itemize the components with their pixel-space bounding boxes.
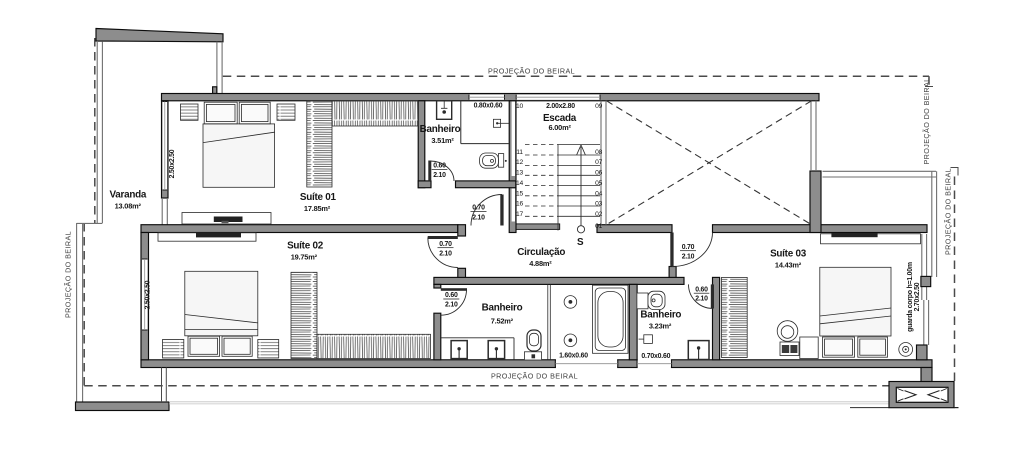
- svg-text:guarda corpo h=1.00m: guarda corpo h=1.00m: [907, 262, 914, 332]
- svg-text:Varanda: Varanda: [109, 189, 146, 200]
- svg-text:Suíte 03: Suíte 03: [770, 249, 807, 260]
- svg-text:2.10: 2.10: [472, 214, 485, 221]
- svg-text:Banheiro: Banheiro: [420, 124, 461, 135]
- svg-text:4.88m²: 4.88m²: [529, 259, 552, 268]
- svg-text:PROJEÇÃO DO BEIRAL: PROJEÇÃO DO BEIRAL: [488, 66, 575, 75]
- svg-text:0.70x0.60: 0.70x0.60: [641, 353, 670, 360]
- svg-text:07: 07: [595, 159, 603, 166]
- svg-text:Circulação: Circulação: [517, 247, 565, 258]
- svg-text:PROJEÇÃO DO BEIRAL: PROJEÇÃO DO BEIRAL: [922, 77, 931, 164]
- svg-text:09: 09: [595, 103, 603, 110]
- svg-text:16: 16: [516, 201, 524, 208]
- svg-text:03: 03: [595, 201, 603, 208]
- svg-text:2.10: 2.10: [445, 301, 458, 308]
- svg-text:05: 05: [595, 180, 603, 187]
- svg-text:PROJEÇÃO DO BEIRAL: PROJEÇÃO DO BEIRAL: [64, 231, 73, 318]
- svg-text:01: 01: [595, 223, 603, 230]
- svg-text:12: 12: [516, 159, 524, 166]
- svg-text:19.75m²: 19.75m²: [291, 252, 318, 261]
- svg-text:2.50x2.50: 2.50x2.50: [145, 280, 152, 309]
- svg-text:06: 06: [595, 170, 603, 177]
- svg-text:3.51m²: 3.51m²: [431, 136, 454, 145]
- svg-text:0.60: 0.60: [433, 162, 446, 169]
- svg-text:0.70: 0.70: [472, 205, 485, 212]
- svg-text:PROJEÇÃO DO BEIRAL: PROJEÇÃO DO BEIRAL: [944, 168, 953, 255]
- svg-text:13: 13: [516, 170, 524, 177]
- svg-text:7.52m²: 7.52m²: [491, 317, 514, 326]
- svg-text:2.10: 2.10: [682, 253, 695, 260]
- svg-text:3.23m²: 3.23m²: [649, 322, 672, 331]
- svg-text:13.08m²: 13.08m²: [115, 202, 142, 211]
- svg-text:0.70: 0.70: [439, 241, 452, 248]
- svg-text:02: 02: [595, 211, 603, 218]
- svg-text:17: 17: [516, 211, 524, 218]
- svg-text:Suíte 02: Suíte 02: [287, 240, 324, 251]
- svg-text:17.85m²: 17.85m²: [304, 204, 331, 213]
- svg-text:Suíte 01: Suíte 01: [300, 192, 337, 203]
- svg-text:2.10: 2.10: [695, 295, 708, 302]
- svg-text:0.60: 0.60: [445, 292, 458, 299]
- svg-text:04: 04: [595, 190, 603, 197]
- svg-text:6.00m²: 6.00m²: [548, 123, 571, 132]
- svg-text:15: 15: [516, 190, 524, 197]
- svg-text:2.10: 2.10: [433, 172, 446, 179]
- svg-text:2.50x2.50: 2.50x2.50: [169, 149, 176, 178]
- svg-text:0.60: 0.60: [695, 287, 708, 294]
- svg-text:11: 11: [516, 149, 523, 156]
- svg-text:S: S: [577, 237, 584, 248]
- svg-text:14.43m²: 14.43m²: [775, 261, 802, 270]
- svg-text:2.00x2.80: 2.00x2.80: [546, 103, 575, 110]
- svg-text:14: 14: [516, 180, 524, 187]
- svg-text:PROJEÇÃO DO BEIRAL: PROJEÇÃO DO BEIRAL: [491, 371, 578, 380]
- svg-text:2.10: 2.10: [439, 250, 452, 257]
- svg-text:08: 08: [595, 149, 603, 156]
- svg-text:0.80x0.60: 0.80x0.60: [474, 103, 503, 110]
- svg-text:Banheiro: Banheiro: [482, 302, 523, 313]
- svg-text:2.70x2.50: 2.70x2.50: [914, 282, 921, 311]
- svg-text:0.70: 0.70: [682, 244, 695, 251]
- svg-text:1.60x0.60: 1.60x0.60: [559, 353, 588, 360]
- svg-text:10: 10: [516, 103, 524, 110]
- svg-text:Banheiro: Banheiro: [640, 310, 681, 321]
